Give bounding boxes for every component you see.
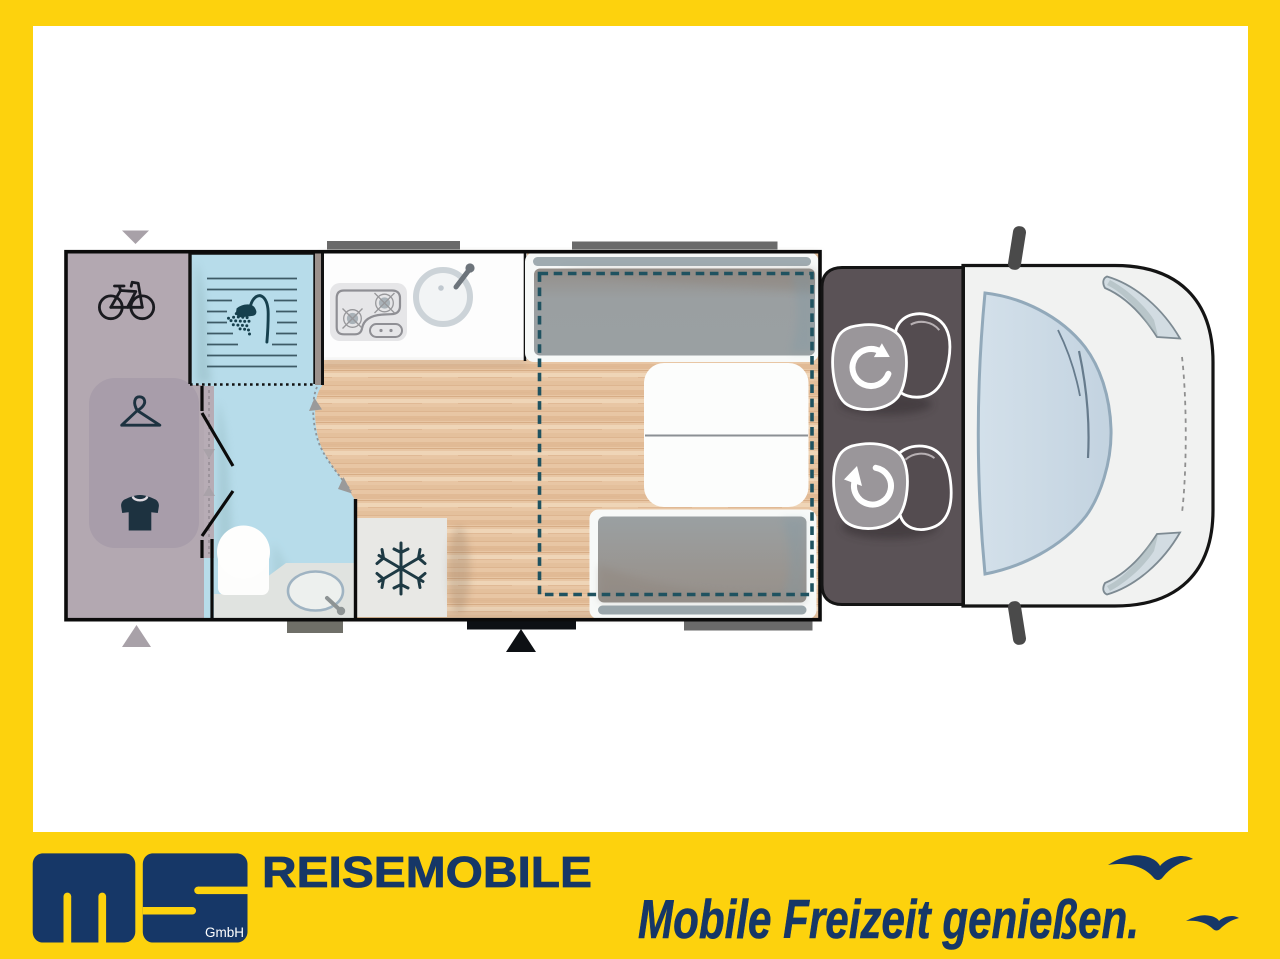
- svg-text:REISEMOBILE: REISEMOBILE: [262, 848, 592, 897]
- svg-text:Mobile Freizeit genießen.: Mobile Freizeit genießen.: [638, 888, 1139, 950]
- svg-text:GmbH: GmbH: [205, 925, 244, 940]
